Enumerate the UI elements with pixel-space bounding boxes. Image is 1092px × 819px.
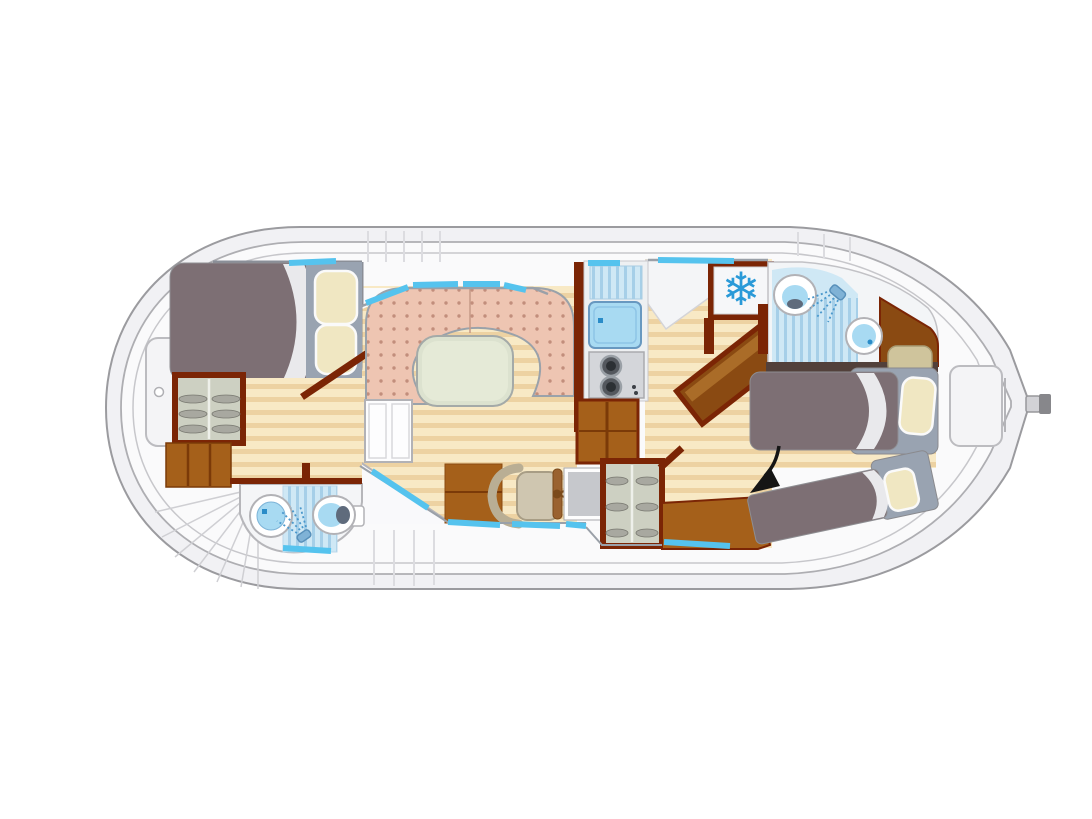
tiller-rudder [1026, 394, 1051, 414]
companionway-steps [577, 400, 638, 463]
fridge-wall-stub [704, 318, 714, 354]
drawer-unit [166, 443, 231, 487]
window [448, 522, 500, 525]
floor-plan-canvas: ❄ [0, 0, 1092, 819]
front-cabin-floor [230, 378, 362, 484]
pillow [899, 377, 937, 436]
front-wardrobe [175, 375, 243, 443]
bathroom-wall-left [758, 304, 768, 354]
boat-floor-plan: ❄ [0, 0, 1092, 819]
stern-deck-hatch [950, 366, 1002, 446]
wall-stub [302, 463, 310, 483]
front-cabin [166, 262, 369, 487]
washbasin [846, 318, 882, 354]
white-cabinet [365, 400, 412, 462]
window [658, 260, 734, 261]
dining-table [417, 336, 513, 406]
window [283, 548, 331, 551]
window [664, 542, 730, 546]
two-burner-stove [589, 352, 644, 398]
galley-sink [589, 302, 641, 348]
toilet [774, 275, 816, 315]
window [512, 524, 560, 526]
double-bed [170, 262, 362, 381]
instrument-panel [564, 468, 606, 520]
single-bed [750, 368, 938, 454]
draining-board [590, 266, 642, 299]
window [289, 261, 336, 263]
pillow [315, 271, 357, 324]
window [566, 524, 586, 526]
window [413, 284, 458, 285]
snowflake-icon: ❄ [722, 262, 761, 316]
